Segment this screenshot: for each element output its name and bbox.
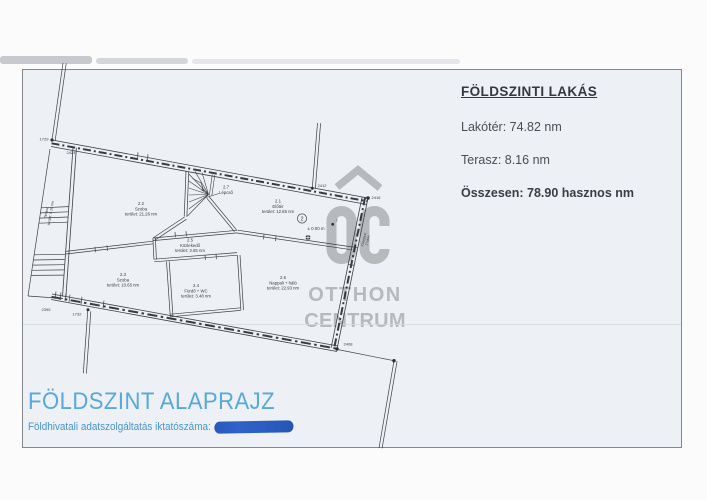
logo-letter-c-gap [376,226,398,249]
dimension-2416: 2416 [372,195,382,200]
unit-number-badge: 2 [297,214,306,223]
room-labels: 2.2 Szoba terület: 21.26 nm 2.7 Lépcső 2… [107,185,300,299]
svg-text:Fürdő + WC: Fürdő + WC [184,288,207,293]
registry-label: Földhivatali adatszolgáltatás iktatószám… [28,421,211,433]
room-label-2-1: 2.1 Előtér terület: 12.85 nm [262,199,295,215]
svg-text:Szoba: Szoba [135,206,148,211]
terrace-line: Terasz: 8.16 nm [461,153,679,167]
svg-text:Lépcső: Lépcső [219,190,233,195]
svg-text:Közlekedő: Közlekedő [180,243,201,248]
svg-text:terület: 12.85 nm: terület: 12.85 nm [262,209,295,214]
dimension-2408: 2408 [344,342,354,347]
svg-text:terület: 22.93 nm: terület: 22.93 nm [267,286,300,291]
svg-text:2.5: 2.5 [187,238,194,243]
room-label-2-2: 2.2 Szoba terület: 21.26 nm [125,201,158,217]
svg-text:terület: 10.65 nm: terület: 10.65 nm [107,283,140,288]
svg-text:terület: 21.26 nm: terület: 21.26 nm [125,212,158,217]
footer: FÖLDSZINT ALAPRAJZ Földhivatali adatszol… [28,388,323,433]
room-label-2-3: 2.3 Szoba terület: 10.65 nm [107,272,140,288]
total-area-line: Összesen: 78.90 hasznos nm [461,186,679,200]
dimension-1732: 1732 [73,312,83,317]
room-label-2-7: 2.7 Lépcső [219,185,233,196]
svg-text:2.7: 2.7 [223,185,230,190]
redaction-blob [214,420,293,433]
dimension-2424: 2424 [67,150,77,155]
level-mark: ± 0.00 m [307,226,324,231]
roof-icon [337,170,380,188]
svg-text:Szoba: Szoba [117,277,130,282]
svg-text:2.2: 2.2 [138,201,145,206]
staircase [188,171,215,216]
svg-text:2.1: 2.1 [275,199,282,204]
dimension-2412: 2412 [318,183,328,188]
svg-text:terület: 3.65 nm: terület: 3.65 nm [175,248,205,253]
living-area-line: Lakótér: 74.82 nm [461,120,679,134]
room-label-2-4: 2.4 Fürdő + WC terület: 3.48 nm [181,283,211,299]
title-block: FÖLDSZINTI LAKÁS Lakótér: 74.82 nm Teras… [461,84,679,219]
svg-text:2: 2 [300,217,303,223]
dimension-1729: 1729 [40,137,50,142]
terrace-label: Terasz terület: 8.16 nm [42,200,55,225]
svg-text:terület: 3.48 nm: terület: 3.48 nm [181,294,211,299]
apartment-heading: FÖLDSZINTI LAKÁS [461,84,679,99]
svg-text:2.4: 2.4 [193,283,200,288]
room-label-2-5: 2.5 Közlekedő terület: 3.65 nm [175,238,205,254]
svg-text:Nappali + háló: Nappali + háló [269,280,297,285]
svg-text:Előtér: Előtér [272,204,284,209]
watermark-brand-line1: OTTHON [308,284,401,306]
page-title: FÖLDSZINT ALAPRAJZ [28,388,299,416]
svg-text:2: 2 [336,219,338,223]
room-label-2-6: 2.6 Nappali + háló terület: 22.93 nm [267,275,300,291]
svg-text:2.3: 2.3 [120,272,127,277]
benchmark-icon [306,235,311,240]
registry-line: Földhivatali adatszolgáltatás iktatószám… [28,421,294,433]
svg-text:2.6: 2.6 [280,275,287,280]
scanned-floorplan-page: OTTHON CENTRUM [0,0,707,500]
svg-text:2 lakás: 2 lakás [365,234,371,245]
logo-letter-o [332,211,352,259]
watermark-brand-line2: CENTRUM [304,310,405,332]
svg-text:terület: 8.16 nm: terület: 8.16 nm [47,201,55,226]
dimension-2395: 2395 [42,307,52,312]
